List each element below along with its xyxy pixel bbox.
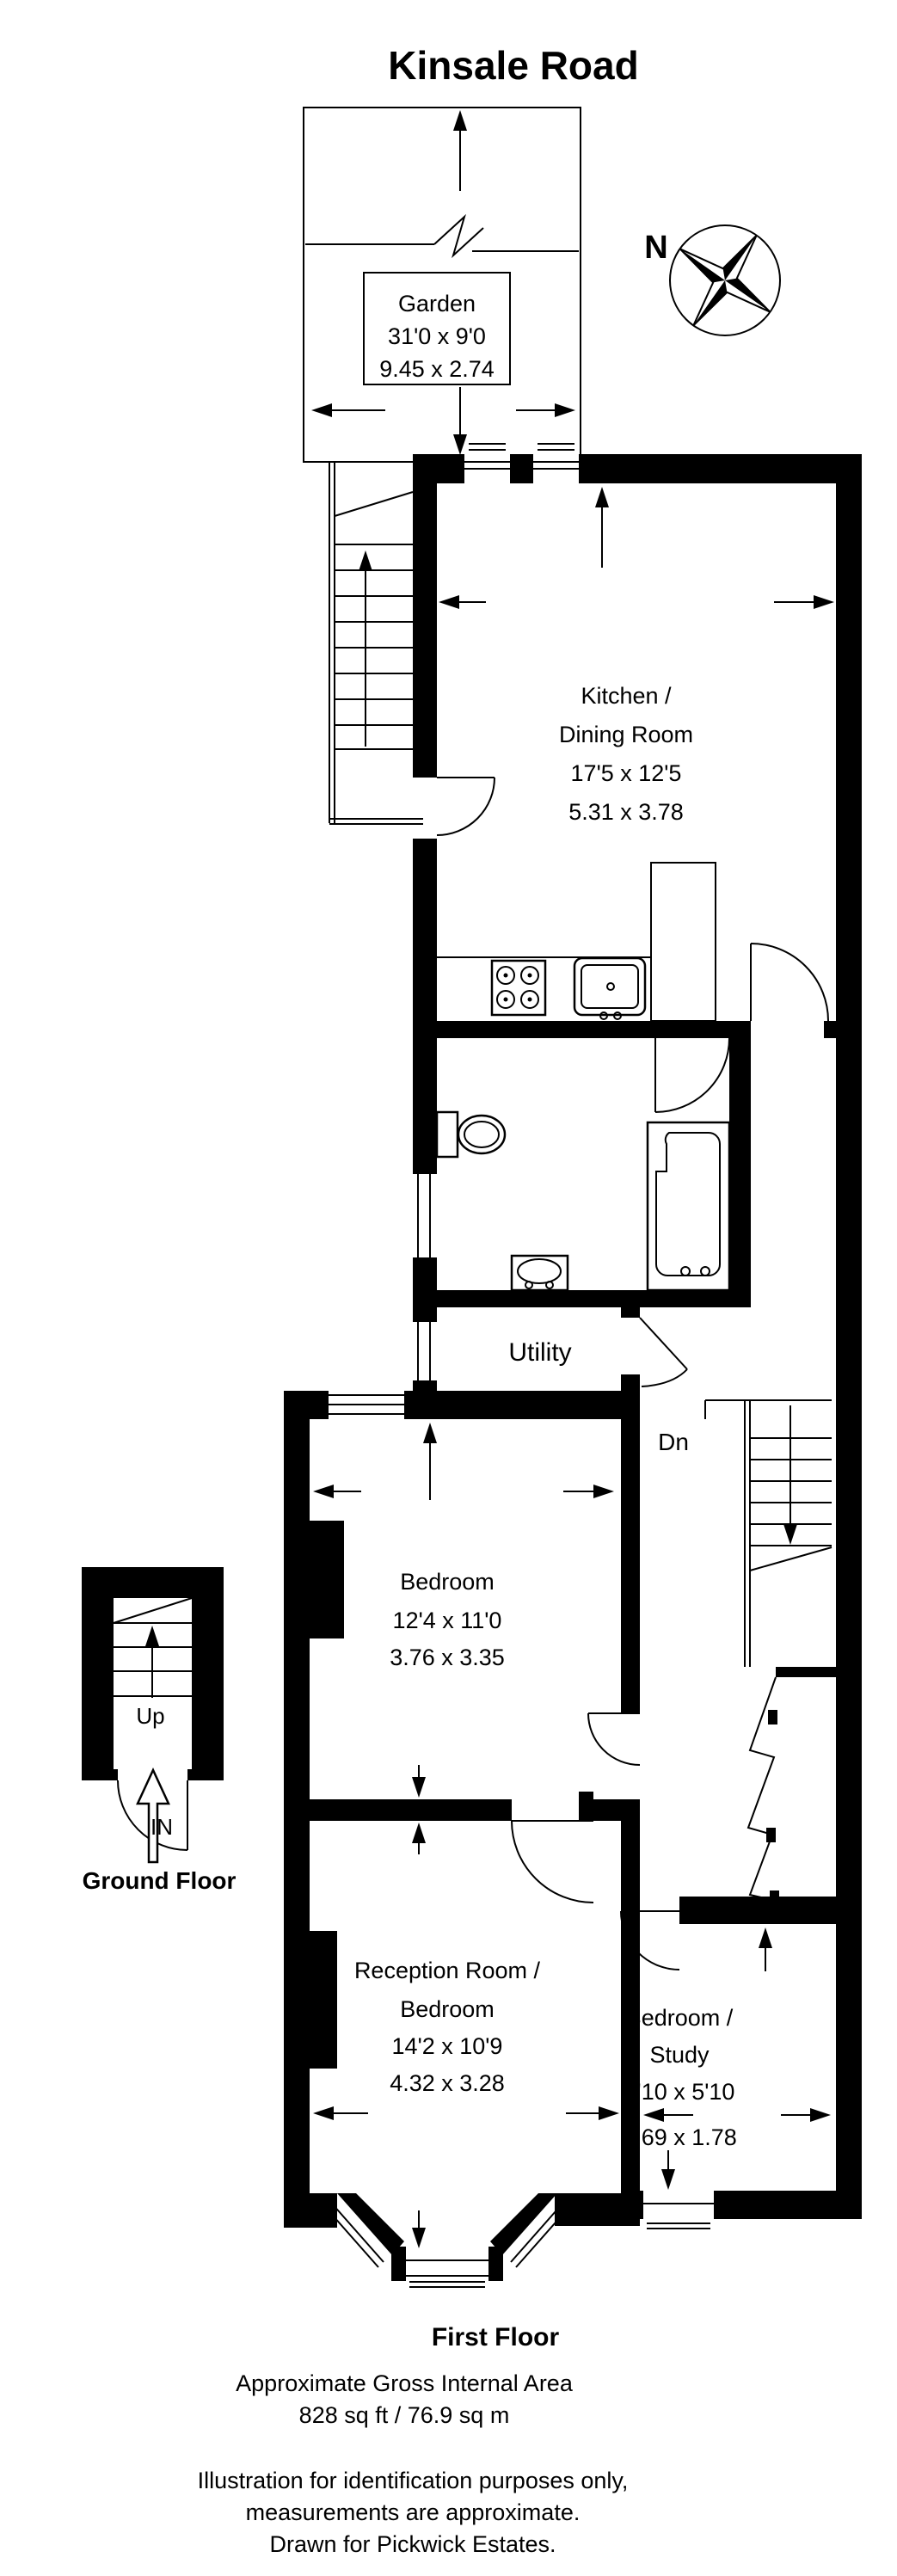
entrance-in-label: IN	[151, 1814, 173, 1840]
garden-dims-m: 9.45 x 2.74	[379, 356, 495, 382]
kitchen-label-2: Dining Room	[559, 722, 693, 747]
study-label-1: Bedroom /	[626, 2005, 734, 2031]
reception-label-2: Bedroom	[400, 1996, 495, 2022]
basin-icon	[512, 1256, 568, 1290]
footer-disclaimer-2: measurements are approximate.	[246, 2499, 581, 2525]
footer-disclaimer-3: Drawn for Pickwick Estates.	[269, 2531, 556, 2557]
compass-icon: N	[644, 225, 780, 335]
up-arrow-icon	[145, 1626, 159, 1646]
ground-floor-entry: Up IN Ground Floor	[82, 1567, 237, 1894]
footer-text: Approximate Gross Internal Area 828 sq f…	[198, 2370, 629, 2557]
kitchen-dining-room: Kitchen / Dining Room 17'5 x 12'5 5.31 x…	[559, 683, 693, 825]
down-stairs: Dn	[658, 1400, 832, 1667]
reception-label-1: Reception Room /	[354, 1958, 541, 1983]
kitchen-label-1: Kitchen /	[581, 683, 672, 709]
footer-area-line1: Approximate Gross Internal Area	[236, 2370, 574, 2396]
page-title: Kinsale Road	[388, 43, 638, 88]
kitchen-dims-m: 5.31 x 3.78	[568, 799, 684, 825]
kitchen-fixtures	[437, 863, 716, 1021]
zigzag-wall	[748, 1677, 779, 1903]
side-return-stairs	[329, 462, 423, 824]
footer-area-line2: 828 sq ft / 76.9 sq m	[299, 2402, 510, 2428]
utility-label: Utility	[508, 1338, 571, 1367]
up-arrow-icon	[359, 550, 372, 571]
first-floor-label: First Floor	[432, 2323, 560, 2352]
compass-north-label: N	[644, 230, 667, 266]
study-dims-ft: 8'10 x 5'10	[624, 2079, 735, 2105]
door-icons	[118, 778, 828, 1970]
study-dims-m: 2.69 x 1.78	[622, 2124, 737, 2150]
reception-dims-ft: 14'2 x 10'9	[392, 2033, 503, 2059]
bathtub-icon	[648, 1122, 729, 1290]
bedroom-dims-m: 3.76 x 3.35	[390, 1645, 505, 1670]
dimension-arrow-icons	[313, 487, 834, 2248]
reception-dims-m: 4.32 x 3.28	[390, 2070, 505, 2096]
bedroom-dims-ft: 12'4 x 11'0	[393, 1608, 502, 1633]
floorplan-page: Kinsale Road N Garden 31'0 x 9'0 9.45 x …	[0, 0, 897, 2576]
kitchen-dims-ft: 17'5 x 12'5	[571, 760, 682, 786]
stairs-down-label: Dn	[658, 1429, 689, 1455]
dimension-arrow-icon	[311, 110, 575, 455]
toilet-icon	[437, 1112, 505, 1157]
sink-icon	[574, 958, 645, 1019]
bedroom-label: Bedroom	[400, 1569, 495, 1595]
study-label-2: Study	[649, 2042, 710, 2068]
garden-area: Garden 31'0 x 9'0 9.45 x 2.74	[304, 108, 581, 462]
ground-floor-label: Ground Floor	[83, 1867, 237, 1894]
garden-dims-ft: 31'0 x 9'0	[388, 323, 486, 349]
reception-room: Reception Room / Bedroom 14'2 x 10'9 4.3…	[354, 1958, 541, 2096]
garden-label: Garden	[398, 291, 476, 317]
stairs-up-label: Up	[136, 1703, 164, 1729]
floorplan-drawing: Kinsale Road N Garden 31'0 x 9'0 9.45 x …	[0, 0, 897, 2576]
bathroom-fixtures	[437, 1112, 729, 1290]
stove-icon	[492, 961, 545, 1015]
footer-disclaimer-1: Illustration for identification purposes…	[198, 2468, 629, 2493]
bedroom-room: Bedroom 12'4 x 11'0 3.76 x 3.35	[390, 1569, 505, 1670]
down-arrow-icon	[783, 1524, 797, 1545]
